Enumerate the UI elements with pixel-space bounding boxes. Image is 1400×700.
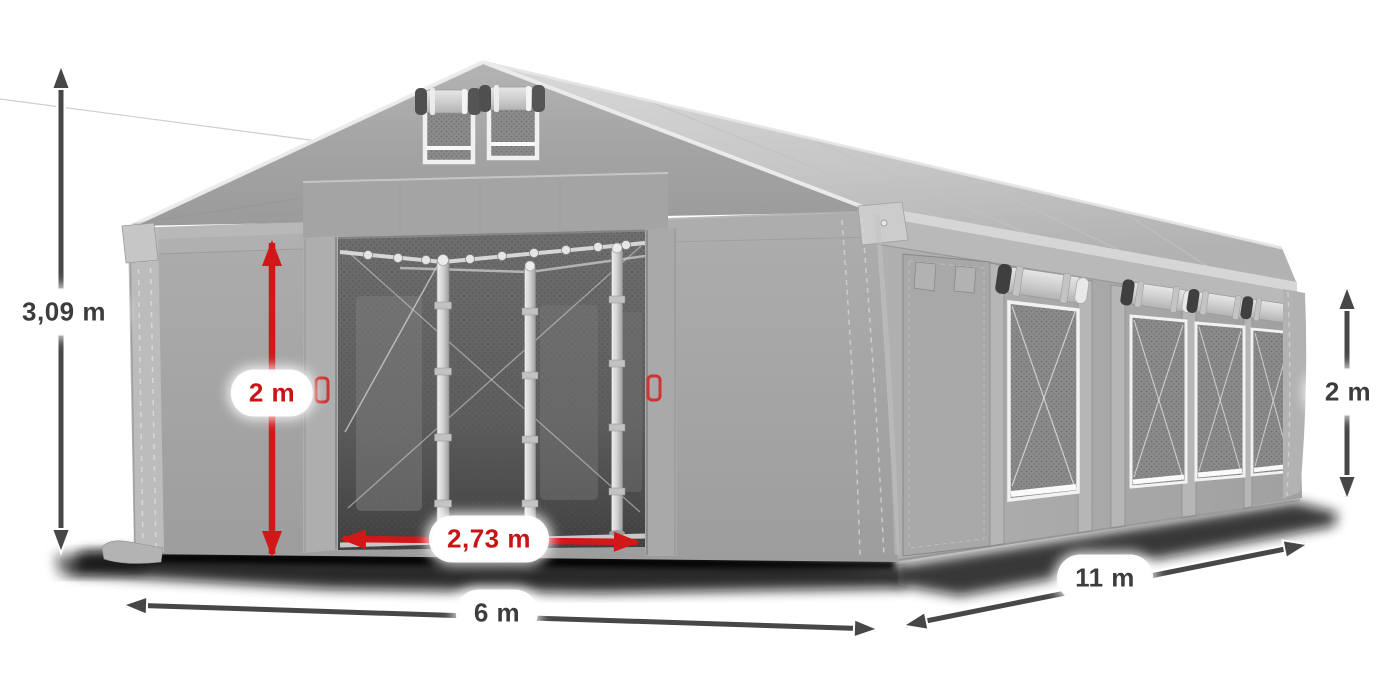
- dimension-label-entrance-height: 2 m: [234, 373, 310, 414]
- door-flap: [914, 262, 936, 291]
- entrance-interior: [338, 228, 645, 550]
- left-eave-block: [122, 223, 158, 263]
- rear-corner-post: [1283, 289, 1306, 499]
- door-flap: [954, 266, 976, 293]
- gable-vent-right: [479, 85, 545, 158]
- gable-vent-left: [415, 88, 481, 162]
- dimension-label-side-height: 2 m: [1310, 372, 1386, 413]
- front-left-corner-post: [102, 228, 164, 563]
- dimension-label-entrance-width: 2,73 m: [432, 519, 546, 560]
- tent-dimension-diagram: 3,09 m 2 m 2,73 m 6 m 11 m 2 m: [0, 0, 1400, 700]
- dimension-label-total-height: 3,09 m: [7, 292, 121, 333]
- dimension-label-side-length: 11 m: [1060, 558, 1150, 599]
- tent-illustration: [0, 0, 1400, 700]
- side-door-panel: [903, 254, 990, 556]
- entrance-header-band: [303, 173, 668, 240]
- tent-entrance: [303, 173, 677, 556]
- entrance-right-post: [645, 228, 677, 556]
- dimension-label-front-width: 6 m: [459, 593, 535, 634]
